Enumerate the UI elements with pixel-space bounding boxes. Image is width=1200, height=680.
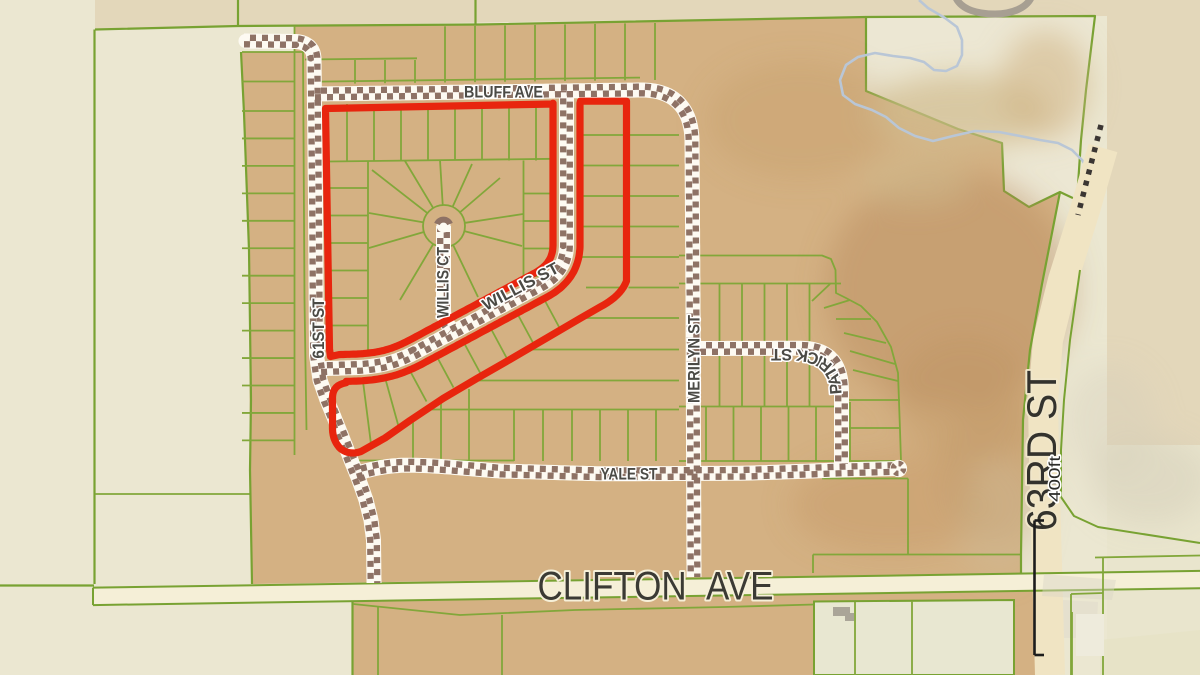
svg-text:CLIFTON AVE: CLIFTON AVE (538, 565, 774, 609)
svg-text:YALE ST: YALE ST (601, 466, 658, 484)
svg-text:WILLIS CT: WILLIS CT (435, 247, 453, 318)
svg-text:61ST ST: 61ST ST (310, 299, 328, 359)
svg-text:63RD ST: 63RD ST (1018, 370, 1065, 531)
svg-text:BLUFF AVE: BLUFF AVE (464, 84, 543, 102)
svg-text:MERILYN ST: MERILYN ST (686, 315, 704, 403)
svg-text:400ft: 400ft (1047, 455, 1064, 502)
